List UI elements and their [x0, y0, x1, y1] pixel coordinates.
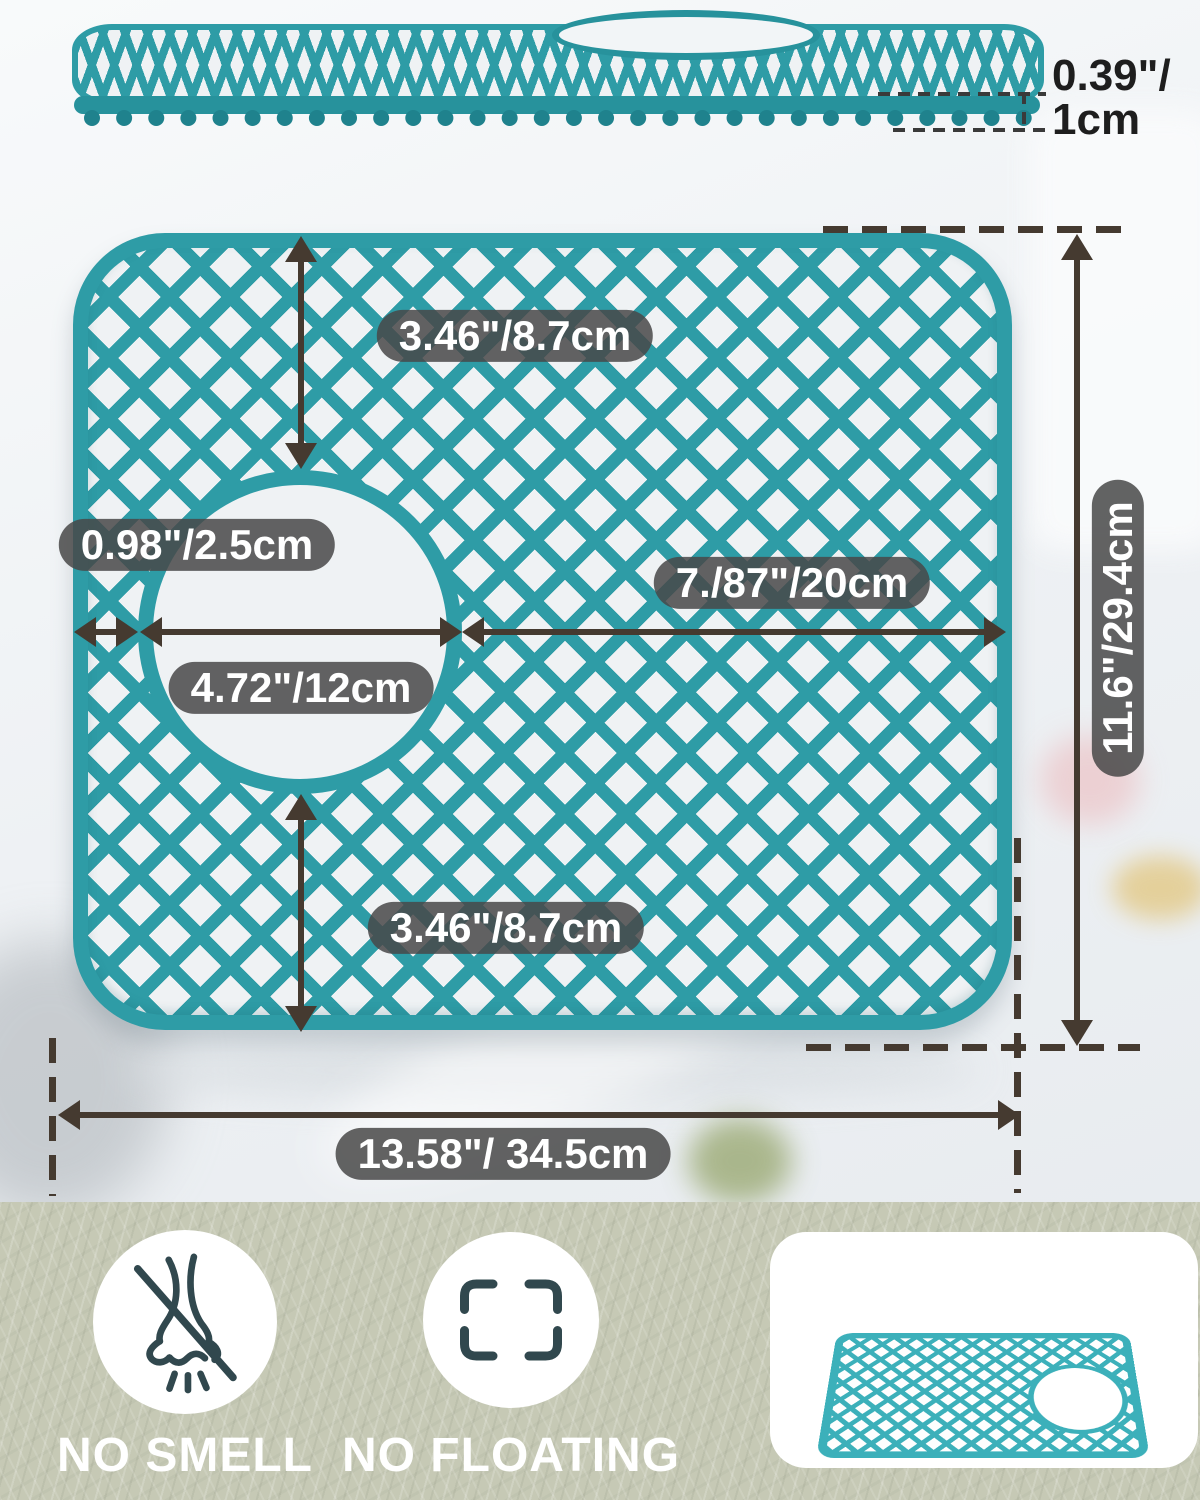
- dimension-label-right-span: 7./87"/20cm: [654, 557, 930, 609]
- dimension-label-hole-diameter: 4.72"/12cm: [169, 662, 434, 714]
- dimension-arrow-bottom-gap: [298, 820, 304, 1006]
- background-blur-lemon: [1112, 856, 1200, 920]
- dimension-label-mat-height: 11.6"/29.4cm: [1092, 479, 1144, 776]
- product-dimension-diagram: 0.39"/ 1cm 3.46"/8.7cm 0.98"/2.5cm 4.72"…: [0, 0, 1200, 1500]
- background-blur-plant: [688, 1118, 792, 1204]
- no-smell-badge: [93, 1230, 277, 1414]
- corner-brackets-icon: [436, 1245, 586, 1395]
- product-thumbnail-hole: [1027, 1364, 1134, 1434]
- dimension-arrow-right-span: [484, 629, 984, 635]
- extension-line-left-edge: [49, 1038, 56, 1196]
- dimension-arrow-mat-height: [1074, 260, 1080, 1020]
- extension-line-bottom-right: [806, 1044, 1140, 1051]
- extension-line-top-right: [823, 226, 1135, 233]
- product-thumbnail-mat: [816, 1333, 1150, 1458]
- dimension-arrow-top-gap: [298, 262, 304, 443]
- thickness-dash-top: [878, 92, 1046, 96]
- no-floating-label: NO FLOATING: [342, 1428, 680, 1483]
- dimension-label-mat-width: 13.58"/ 34.5cm: [336, 1128, 671, 1180]
- extension-line-right-edge: [1014, 838, 1021, 1193]
- no-smell-label: NO SMELL: [57, 1428, 313, 1483]
- product-thumbnail-card: [770, 1232, 1198, 1468]
- thickness-dash-vertical: [1022, 92, 1026, 132]
- thickness-label: 0.39"/ 1cm: [1052, 54, 1171, 142]
- feature-bar: NO SMELL NO FLOATING: [0, 1202, 1200, 1500]
- mat-side-grip-nubs: [84, 110, 1032, 126]
- mat-side-drain-hole: [552, 10, 820, 60]
- dimension-label-bottom-gap: 3.46"/8.7cm: [368, 902, 644, 954]
- dimension-arrow-left-gap: [96, 629, 116, 635]
- thickness-label-line1: 0.39"/: [1052, 54, 1171, 98]
- dimension-arrow-mat-width: [80, 1112, 998, 1118]
- dimension-arrow-hole-diameter: [162, 629, 440, 635]
- dimension-label-top-gap: 3.46"/8.7cm: [377, 310, 653, 362]
- thickness-label-line2: 1cm: [1052, 98, 1171, 142]
- nose-crossed-icon: [111, 1246, 259, 1398]
- no-floating-badge: [423, 1232, 599, 1408]
- dimension-label-left-gap: 0.98"/2.5cm: [59, 519, 335, 571]
